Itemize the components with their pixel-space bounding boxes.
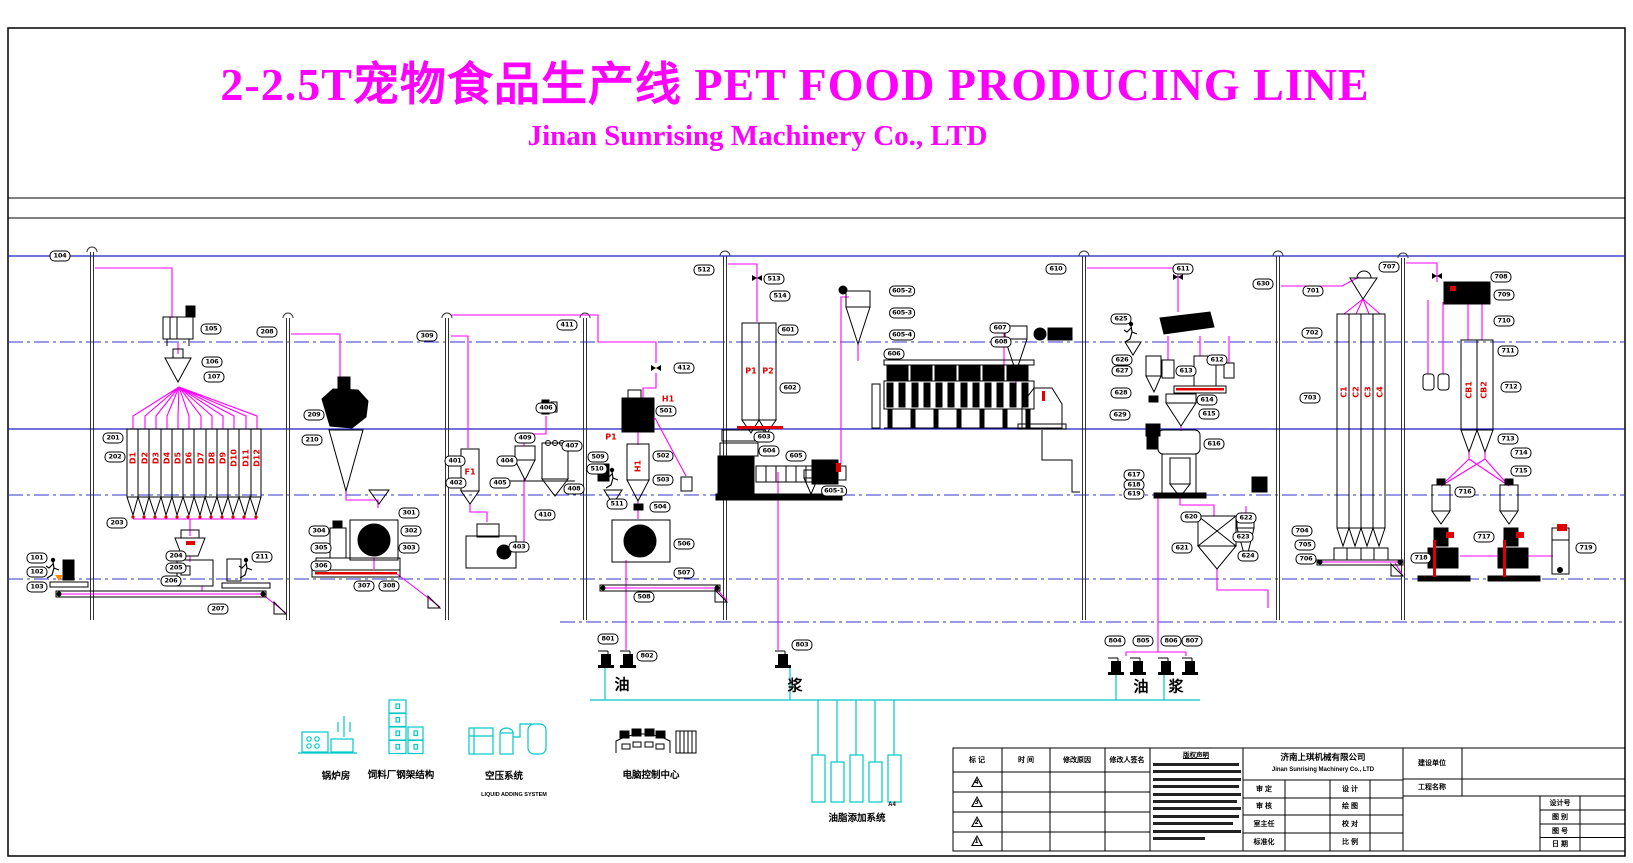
equipment-label-624: 624 xyxy=(1238,551,1259,562)
equipment-label-607: 607 xyxy=(990,323,1011,334)
legend-air-sublabel: LIQUID ADDING SYSTEM xyxy=(481,792,547,798)
equipment-label-605-3: 605-3 xyxy=(889,308,915,319)
copyright-text-line xyxy=(1153,785,1239,788)
bin-tag-d6: D6 xyxy=(185,452,194,464)
copyright-text-line xyxy=(1153,778,1241,781)
tb-scale: 比 例 xyxy=(1342,837,1358,847)
tb-standard: 标准化 xyxy=(1254,837,1275,847)
equipment-label-303: 303 xyxy=(399,543,420,554)
bin-tag-d4: D4 xyxy=(163,452,172,464)
liquid-label-0: 油 xyxy=(614,674,629,695)
equipment-label-605-2: 605-2 xyxy=(889,286,915,297)
equipment-label-612: 612 xyxy=(1207,355,1228,366)
tb-dept-head: 室主任 xyxy=(1254,819,1275,829)
equipment-label-620: 620 xyxy=(1181,512,1202,523)
tb-company-en: Jinan Sunrising Machinery Co., LTD xyxy=(1272,767,1374,773)
equipment-label-710: 710 xyxy=(1494,316,1515,327)
equipment-label-202: 202 xyxy=(105,452,126,463)
tb-draw: 绘 图 xyxy=(1342,801,1358,811)
equipment-label-605-4: 605-4 xyxy=(889,330,915,341)
copyright-text-line xyxy=(1153,800,1237,803)
equipment-label-615: 615 xyxy=(1199,409,1220,420)
bin-tag-d5: D5 xyxy=(174,452,183,464)
equipment-label-309: 309 xyxy=(417,331,438,342)
equipment-label-506: 506 xyxy=(674,539,695,550)
bin-tag-d10: D10 xyxy=(230,449,239,467)
equipment-label-501: 501 xyxy=(656,406,677,417)
process-flow-lines xyxy=(60,263,1553,656)
equipment-label-103: 103 xyxy=(27,582,48,593)
tb-design-no: 设计号 xyxy=(1550,798,1571,808)
equipment-label-807: 807 xyxy=(1182,636,1203,647)
equipment-label-406: 406 xyxy=(536,403,557,414)
equipment-label-308: 308 xyxy=(379,581,400,592)
tb-header-mark: 标 记 xyxy=(969,755,985,765)
equipment-label-511: 511 xyxy=(607,499,628,510)
equipment-label-613: 613 xyxy=(1176,366,1197,377)
equipment-label-404: 404 xyxy=(497,456,518,467)
drawing-title: 2-2.5T宠物食品生产线 PET FOOD PRODUCING LINE xyxy=(0,48,1590,114)
liquid-label-2: 油 xyxy=(1133,676,1148,697)
equipment-label-711: 711 xyxy=(1498,346,1519,357)
equipment-label-603: 603 xyxy=(754,432,775,443)
equipment-label-626: 626 xyxy=(1112,355,1133,366)
equipment-label-401: 401 xyxy=(445,456,466,467)
red-accents xyxy=(131,286,1567,577)
equipment-label-407: 407 xyxy=(562,441,583,452)
tb-approve: 审 定 xyxy=(1256,784,1272,794)
equipment-label-714: 714 xyxy=(1511,448,1532,459)
equipment-label-412: 412 xyxy=(674,363,695,374)
equipment-label-203: 203 xyxy=(107,518,128,529)
equipment-label-210: 210 xyxy=(302,435,323,446)
equipment-label-101: 101 xyxy=(27,553,48,564)
liquid-utility-lines xyxy=(590,668,1200,802)
tb-check: 审 核 xyxy=(1256,801,1272,811)
equipment-label-304: 304 xyxy=(309,526,330,537)
equipment-label-713: 713 xyxy=(1498,434,1519,445)
copyright-text-line xyxy=(1153,793,1241,796)
equipment-label-804: 804 xyxy=(1105,636,1126,647)
equipment-label-608: 608 xyxy=(991,337,1012,348)
legend-icons xyxy=(298,700,546,754)
bin-tag-c2: C2 xyxy=(1352,386,1361,397)
equipment-label-705: 705 xyxy=(1295,540,1316,551)
equipment-label-630: 630 xyxy=(1253,279,1274,290)
liquid-label-1: 浆 xyxy=(787,675,802,696)
liquid-label-3: 浆 xyxy=(1168,676,1183,697)
equipment-label-301: 301 xyxy=(399,508,420,519)
equipment-label-509: 509 xyxy=(588,452,609,463)
tb-paper-size: A4 xyxy=(888,802,896,808)
equipment-label-410: 410 xyxy=(535,510,556,521)
equipment-label-701: 701 xyxy=(1303,286,1324,297)
tb-proof: 校 对 xyxy=(1342,819,1358,829)
bin-tag-d11: D11 xyxy=(242,449,251,467)
bin-tag-d7: D7 xyxy=(197,452,206,464)
equipment-label-601: 601 xyxy=(778,325,799,336)
equipment-label-708: 708 xyxy=(1491,272,1512,283)
equipment-label-302: 302 xyxy=(401,526,422,537)
equipment-label-206: 206 xyxy=(161,576,182,587)
legend-steel-label: 饲料厂钢架结构 xyxy=(368,767,435,781)
equipment-label-621: 621 xyxy=(1172,543,1193,554)
bin-tag-d9: D9 xyxy=(219,452,228,464)
bin-tag-c3: C3 xyxy=(1364,386,1373,397)
bin-tag-d3: D3 xyxy=(152,452,161,464)
equipment-label-704: 704 xyxy=(1292,526,1313,537)
tb-header-signature: 修改人签名 xyxy=(1110,755,1145,765)
revision-mark-4: 4 xyxy=(971,776,983,787)
equipment-label-510: 510 xyxy=(587,464,608,475)
tb-header-reason: 修改原因 xyxy=(1063,755,1091,765)
equipment-label-605: 605 xyxy=(786,451,807,462)
legend-computer-label: 电脑控制中心 xyxy=(622,767,679,781)
bin-tag-cb1: CB1 xyxy=(1465,381,1474,399)
equipment-label-803: 803 xyxy=(792,640,813,651)
equipment-label-104: 104 xyxy=(50,251,71,262)
equipment-label-102: 102 xyxy=(27,567,48,578)
equipment-label-306: 306 xyxy=(311,561,332,572)
equipment-label-707: 707 xyxy=(1379,262,1400,273)
equipment-label-619: 619 xyxy=(1124,489,1145,500)
bin-tag-c4: C4 xyxy=(1376,386,1385,397)
equipment-label-605-1: 605-1 xyxy=(821,486,847,497)
equipment-label-702: 702 xyxy=(1302,328,1323,339)
equipment-label-305: 305 xyxy=(311,543,332,554)
equipment-label-703: 703 xyxy=(1300,393,1321,404)
equipment-label-716: 716 xyxy=(1455,487,1476,498)
bin-tag-h1: H1 xyxy=(634,460,643,472)
title-block-grid xyxy=(953,748,1625,851)
bin-tag-h1: H1 xyxy=(662,395,674,404)
equipment-label-712: 712 xyxy=(1501,382,1522,393)
tb-company-cn: 济南上琪机械有限公司 xyxy=(1280,751,1365,763)
equipment-label-628: 628 xyxy=(1111,388,1132,399)
bin-tag-d2: D2 xyxy=(141,452,150,464)
equipment-label-512: 512 xyxy=(694,265,715,276)
bin-tag-p2: P2 xyxy=(762,367,773,376)
bin-tag-p1: P1 xyxy=(605,433,616,442)
equipment-label-715: 715 xyxy=(1511,466,1532,477)
equipment-label-514: 514 xyxy=(770,291,791,302)
drawing-subtitle: Jinan Sunrising Machinery Co., LTD xyxy=(0,120,1515,153)
equipment-label-625: 625 xyxy=(1111,314,1132,325)
tb-copyright-title: 版权声明 xyxy=(1183,749,1209,759)
equipment-label-629: 629 xyxy=(1110,410,1131,421)
equipment-label-604: 604 xyxy=(759,446,780,457)
equipment-label-719: 719 xyxy=(1576,543,1597,554)
revision-mark-1: 1 xyxy=(971,835,983,846)
equipment-label-105: 105 xyxy=(201,324,222,335)
equipment-label-801: 801 xyxy=(598,634,619,645)
bin-tag-d1: D1 xyxy=(129,452,138,464)
bin-tag-c1: C1 xyxy=(1340,386,1349,397)
equipment-label-805: 805 xyxy=(1133,636,1154,647)
copyright-text-line xyxy=(1153,822,1233,825)
equipment-label-502: 502 xyxy=(653,451,674,462)
legend-boiler-label: 锅炉房 xyxy=(322,768,351,782)
equipment-label-411: 411 xyxy=(557,320,578,331)
equipment-label-408: 408 xyxy=(564,484,585,495)
bin-tag-d8: D8 xyxy=(208,452,217,464)
equipment-label-211: 211 xyxy=(252,552,273,563)
equipment-label-802: 802 xyxy=(637,651,658,662)
drawing-sheet: 2-2.5T宠物食品生产线 PET FOOD PRODUCING LINE Ji… xyxy=(0,0,1633,863)
equipment-label-610: 610 xyxy=(1046,264,1067,275)
bin-tag-p1: P1 xyxy=(745,367,756,376)
copyright-text-line xyxy=(1153,770,1241,773)
equipment-label-718: 718 xyxy=(1411,553,1432,564)
bin-tag-d12: D12 xyxy=(253,449,262,467)
tb-header-time: 时 间 xyxy=(1018,755,1034,765)
equipment-label-209: 209 xyxy=(304,410,325,421)
equipment-label-806: 806 xyxy=(1161,636,1182,647)
equipment-label-717: 717 xyxy=(1474,532,1495,543)
equipment-label-402: 402 xyxy=(446,478,467,489)
bin-tag-f1: F1 xyxy=(464,468,475,477)
revision-mark-3: 3 xyxy=(971,796,983,807)
equipment-shapes xyxy=(46,271,1569,753)
equipment-label-614: 614 xyxy=(1197,395,1218,406)
equipment-label-208: 208 xyxy=(257,327,278,338)
equipment-label-616: 616 xyxy=(1204,439,1225,450)
equipment-label-606: 606 xyxy=(884,349,905,360)
equipment-label-405: 405 xyxy=(490,478,511,489)
equipment-label-602: 602 xyxy=(780,383,801,394)
equipment-label-403: 403 xyxy=(509,542,530,553)
equipment-label-627: 627 xyxy=(1112,366,1133,377)
copyright-text-line xyxy=(1153,830,1241,833)
equipment-label-507: 507 xyxy=(674,568,695,579)
equipment-label-513: 513 xyxy=(764,274,785,285)
copyright-text-line xyxy=(1153,807,1241,810)
copyright-text-line xyxy=(1153,837,1205,840)
equipment-label-409: 409 xyxy=(515,433,536,444)
equipment-label-205: 205 xyxy=(166,563,187,574)
tb-sheet-no: 图 号 xyxy=(1552,826,1568,836)
equipment-label-611: 611 xyxy=(1173,264,1194,275)
equipment-label-706: 706 xyxy=(1296,554,1317,565)
equipment-label-107: 107 xyxy=(204,372,225,383)
revision-mark-2: 2 xyxy=(971,816,983,827)
equipment-label-106: 106 xyxy=(202,357,223,368)
equipment-label-709: 709 xyxy=(1494,290,1515,301)
legend-air-label: 空压系统 xyxy=(485,768,523,782)
equipment-label-201: 201 xyxy=(103,433,124,444)
equipment-label-623: 623 xyxy=(1233,532,1254,543)
tb-project-name: 工程名称 xyxy=(1418,782,1446,792)
equipment-label-503: 503 xyxy=(653,475,674,486)
equipment-label-204: 204 xyxy=(166,551,187,562)
copyright-text-line xyxy=(1153,815,1239,818)
tb-design: 设 计 xyxy=(1342,784,1358,794)
bin-tag-cb2: CB2 xyxy=(1480,381,1489,399)
copyright-text-line xyxy=(1153,763,1239,766)
legend-oil-system-label: 油脂添加系统 xyxy=(828,810,885,824)
equipment-label-504: 504 xyxy=(650,502,671,513)
tb-date: 日 期 xyxy=(1552,839,1568,849)
equipment-label-508: 508 xyxy=(634,592,655,603)
equipment-label-307: 307 xyxy=(354,581,375,592)
tb-sheet-class: 图 别 xyxy=(1552,812,1568,822)
tb-build-unit: 建设单位 xyxy=(1418,758,1446,768)
equipment-label-207: 207 xyxy=(208,604,229,615)
equipment-label-622: 622 xyxy=(1236,513,1257,524)
